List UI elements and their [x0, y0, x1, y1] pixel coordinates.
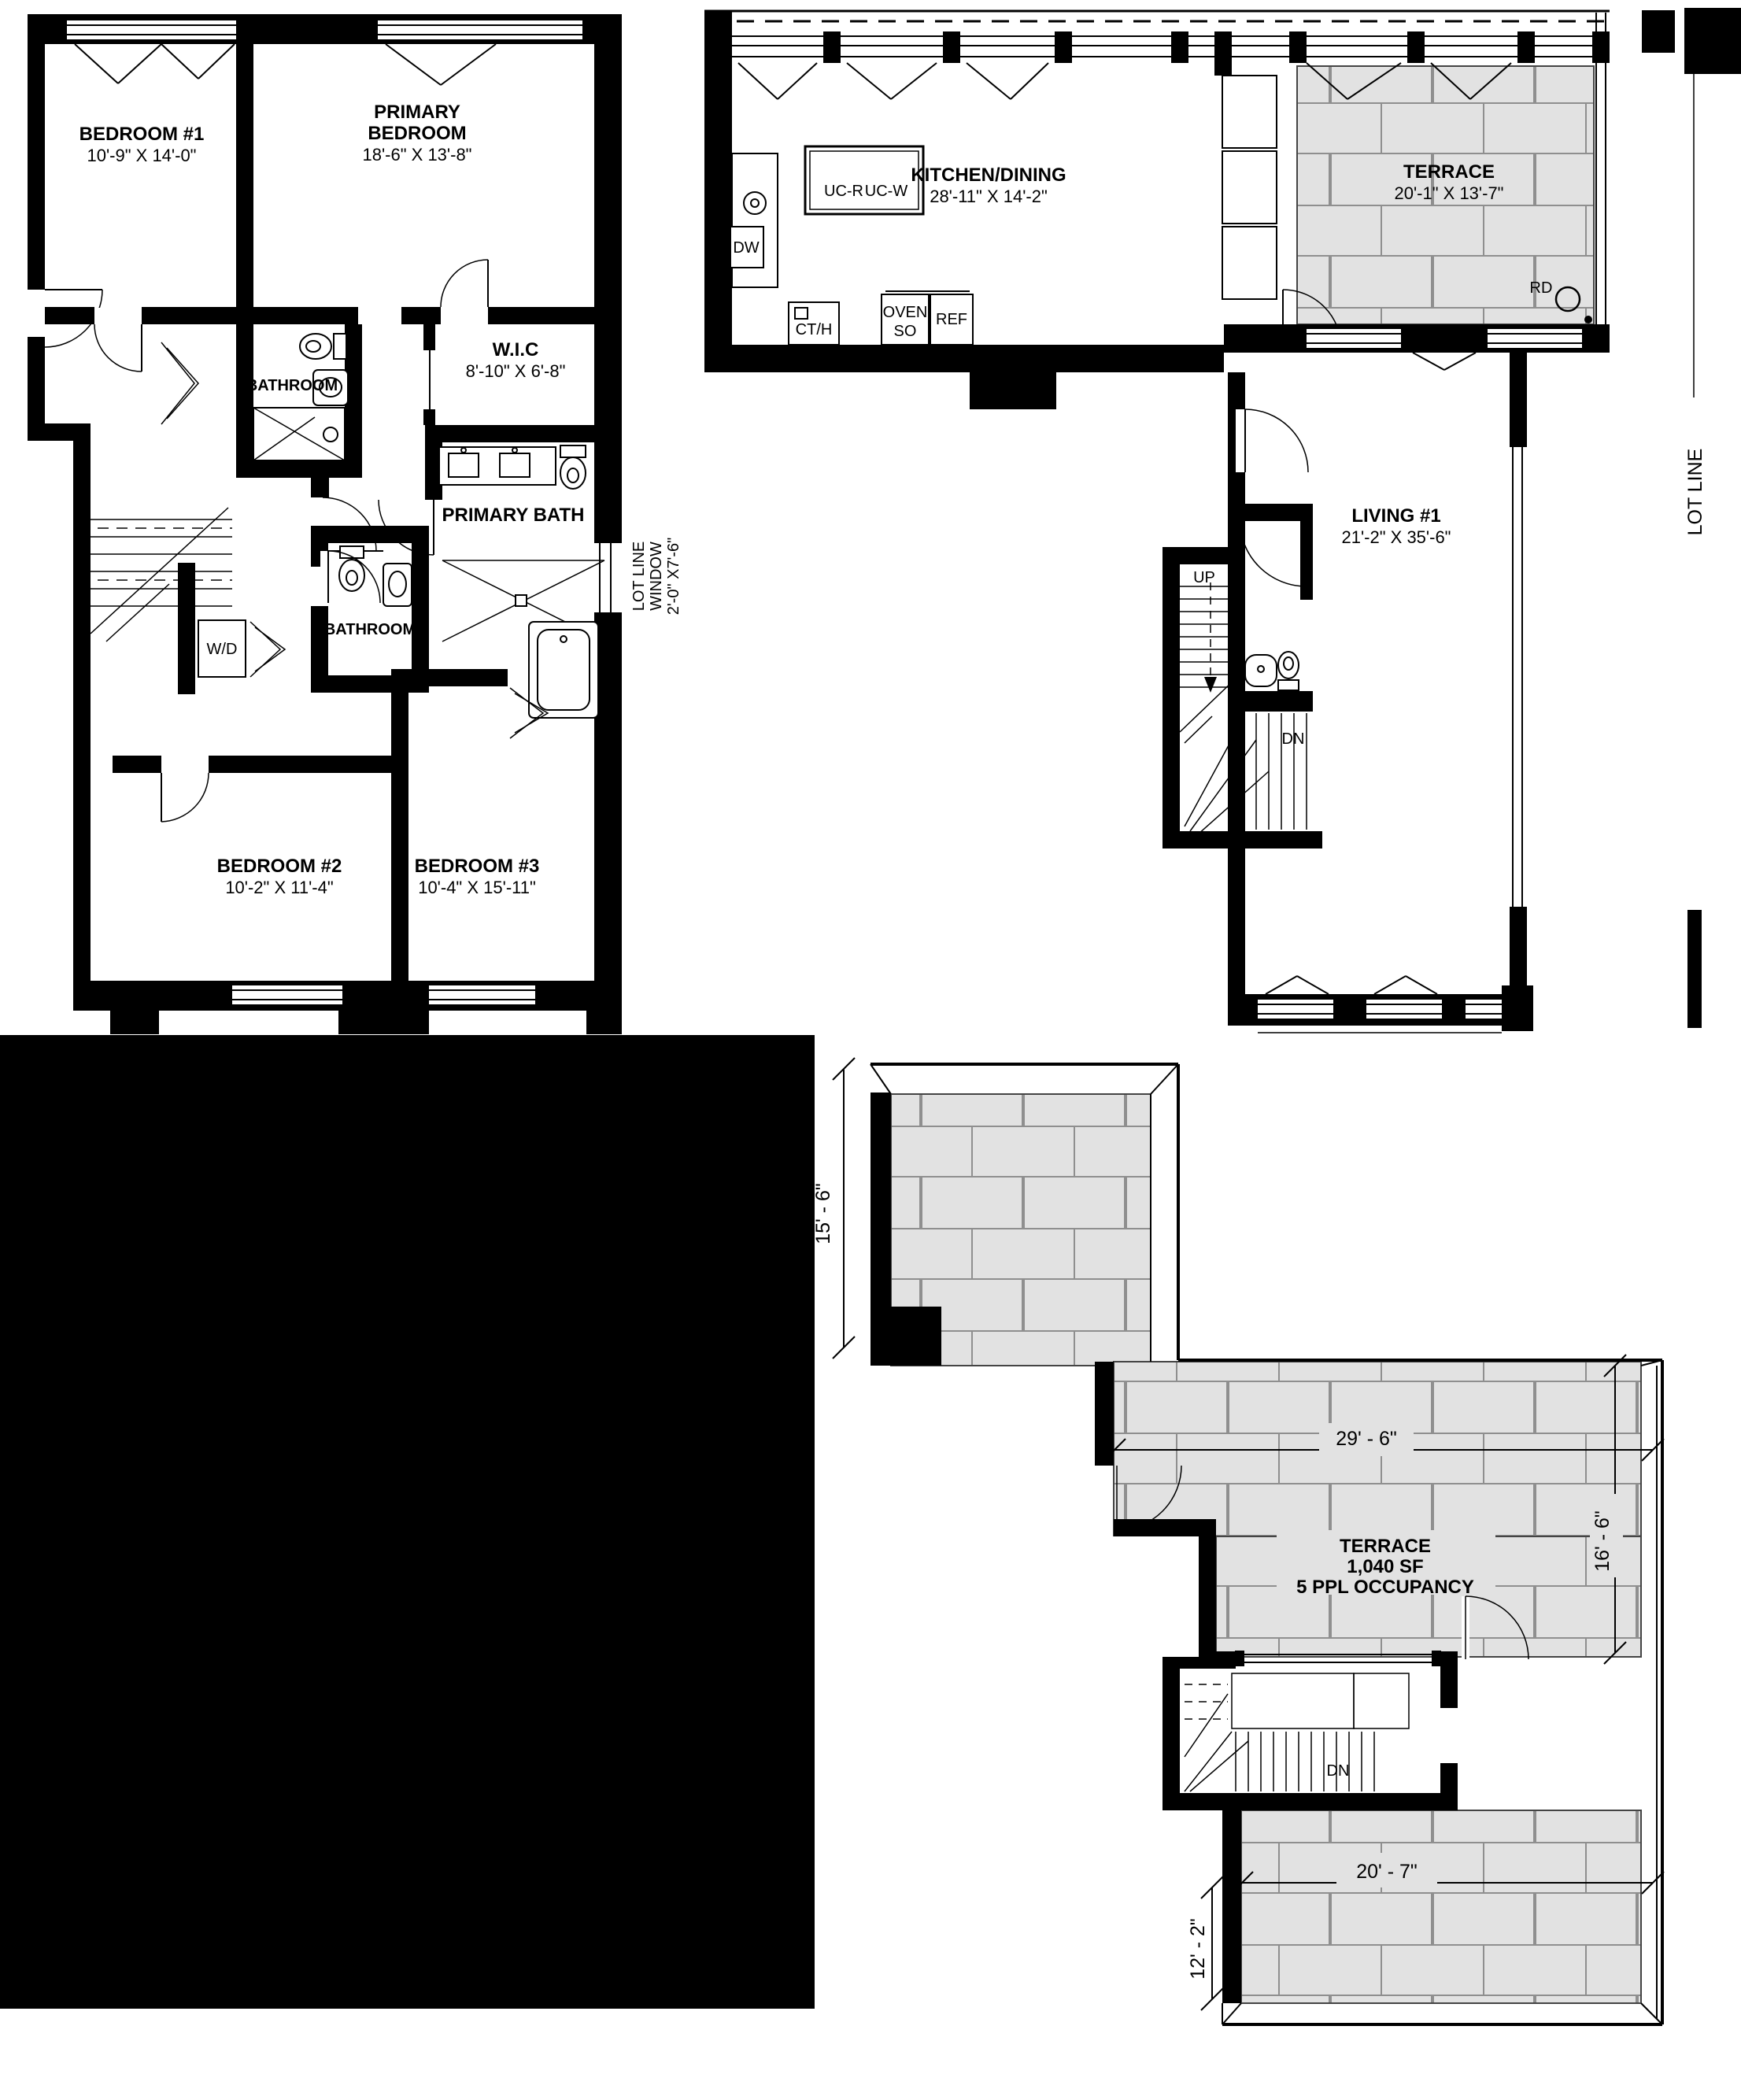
stairs-up-label: UP: [1193, 569, 1215, 586]
toilet-icon: [560, 446, 586, 489]
stairs-down-label: DN: [1327, 1762, 1350, 1780]
dimension-label: 16' - 6": [1591, 1510, 1613, 1572]
window: [67, 20, 236, 83]
room-label: TERRACE: [1403, 161, 1495, 183]
room-dims: 8'-10" X 6'-8": [466, 361, 566, 381]
floor-plan-canvas: BEDROOM #1 10'-9" X 14'-0" PRIMARY BEDRO…: [0, 0, 1741, 2100]
sink-icon: [383, 564, 412, 606]
door-arc: [94, 316, 142, 372]
room-label: KITCHEN/DINING: [911, 165, 1066, 186]
dimension-label: 29' - 6": [1336, 1428, 1397, 1450]
room-label: PRIMARY BATH: [442, 505, 585, 526]
door-arc: [441, 260, 488, 307]
kitchen-island: [805, 146, 923, 214]
bifold-door: [161, 342, 198, 424]
door-arc: [161, 773, 209, 822]
room-dims: 20'-1" X 13'-7": [1395, 183, 1504, 203]
room-label: W.I.C: [493, 339, 539, 360]
terrace-area-label: 1,040 SF: [1347, 1556, 1423, 1577]
dishwasher-label: DW: [733, 239, 759, 257]
bedroom-level-labels: BEDROOM #1 10'-9" X 14'-0" PRIMARY BEDRO…: [79, 102, 682, 897]
shower-icon: [253, 408, 345, 460]
dimension-label: 15' - 6": [812, 1183, 834, 1244]
room-dims: 10'-9" X 14'-0": [87, 146, 197, 165]
door-arc: [1240, 519, 1307, 586]
room-label: LIVING #1: [1351, 505, 1440, 527]
terrace-occupancy-label: 5 PPL OCCUPANCY: [1296, 1577, 1474, 1598]
room-dims: 28'-11" X 14'-2": [930, 187, 1048, 206]
roof-drain-label: RD: [1530, 279, 1553, 297]
cooktop-hood-label: CT/H: [796, 321, 833, 338]
dimension-label: 20' - 7": [1356, 1861, 1418, 1883]
room-label: BEDROOM: [368, 123, 466, 144]
room-dims: 21'-2" X 35'-6": [1342, 527, 1451, 547]
room-dims: 18'-6" X 13'-8": [363, 145, 472, 165]
lot-line-label: LOT LINE: [1684, 449, 1706, 536]
room-label: BEDROOM #1: [79, 124, 205, 145]
room-label: BEDROOM #2: [217, 856, 342, 877]
lot-line-window-label: LOT LINE: [630, 542, 648, 612]
island-label: UC-R: [824, 183, 863, 200]
room-label: BEDROOM #3: [415, 856, 540, 877]
roof-tile-floor: [1241, 1810, 1641, 2003]
hood-switch: [795, 308, 808, 319]
window: [378, 20, 582, 85]
lot-line-window: [600, 543, 611, 612]
toilet-icon: [1278, 652, 1299, 690]
bedroom-level-plan: BEDROOM #1 10'-9" X 14'-0" PRIMARY BEDRO…: [28, 14, 682, 1034]
lot-line-window-label: 2'-0" X7'-6": [665, 538, 682, 616]
toilet-icon: [300, 334, 346, 359]
parapet: [1596, 13, 1694, 397]
room-dims: 10'-4" X 15'-11": [418, 878, 536, 897]
main-level-plan: UC-R UC-W KITCHEN/DINING 28'-11" X 14'-2…: [704, 8, 1741, 1033]
room-label: TERRACE: [1340, 1536, 1431, 1557]
oven-label: OVEN: [883, 304, 928, 321]
roof-drain-dot: [1585, 316, 1591, 323]
sink-icon: [1245, 655, 1277, 686]
oven-label: SO: [894, 323, 917, 340]
pantry-cabinets: [1222, 76, 1277, 299]
door-arc: [1245, 409, 1308, 472]
roof-level-plan: 15' - 6" 29' - 6" 16' - 6" 20' - 7" 12' …: [812, 1058, 1664, 2024]
room-dims: 10'-2" X 11'-4": [225, 878, 333, 897]
bifold-door: [250, 622, 285, 677]
room-label: BATHROOM: [246, 377, 338, 394]
refrigerator-label: REF: [936, 311, 967, 328]
room-label: PRIMARY: [374, 102, 460, 123]
vanity-double-sink: [439, 447, 556, 485]
bathtub-icon: [529, 622, 598, 718]
stairs-down-label: DN: [1282, 730, 1305, 748]
island-label: UC-W: [865, 183, 908, 200]
black-mask-rectangle: [0, 1035, 815, 2009]
room-label: BATHROOM: [324, 621, 416, 638]
floorplan-sheet: BEDROOM #1 10'-9" X 14'-0" PRIMARY BEDRO…: [0, 0, 1741, 2100]
dimension-label: 12' - 2": [1187, 1918, 1209, 1980]
washer-dryer-label: W/D: [207, 641, 238, 658]
lot-line-window: [1513, 447, 1522, 907]
lot-line-window-label: WINDOW: [648, 542, 665, 611]
